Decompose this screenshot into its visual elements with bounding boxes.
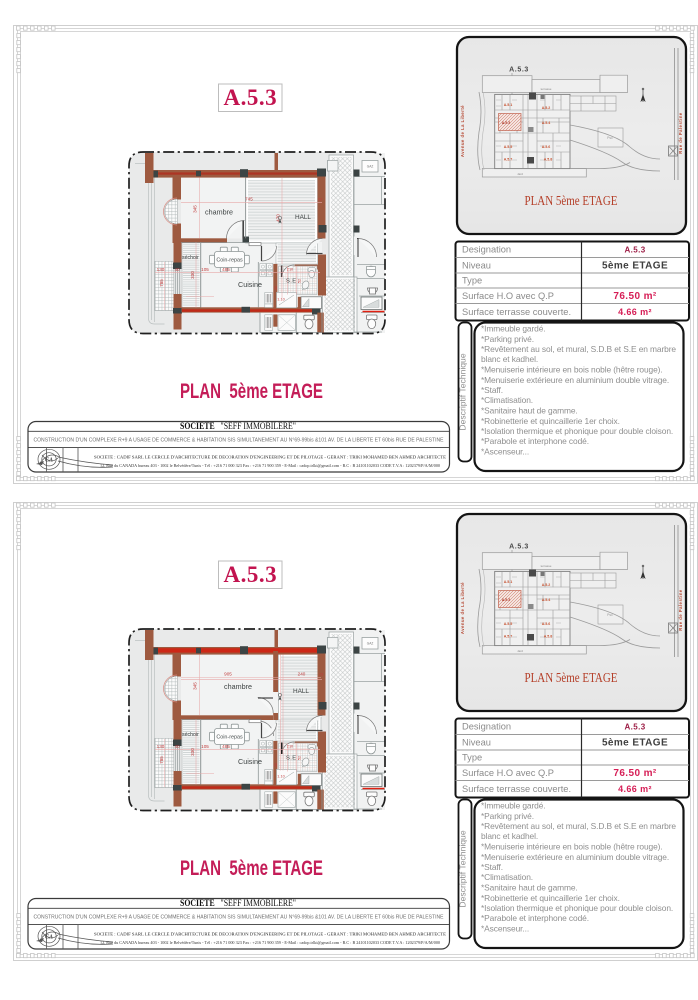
- svg-text:210: 210: [287, 745, 293, 749]
- svg-text:Descriptif Technique: Descriptif Technique: [458, 830, 468, 907]
- svg-text:chambre: chambre: [205, 208, 233, 217]
- svg-text:*Isolation thermique et phoniq: *Isolation thermique et phonique pour do…: [481, 903, 673, 913]
- svg-text:PLAN 5ème ETAGE: PLAN 5ème ETAGE: [180, 857, 323, 880]
- svg-text:séchoir: séchoir: [182, 732, 199, 738]
- svg-text:52: 52: [298, 279, 302, 283]
- svg-text:HALL: HALL: [293, 688, 309, 695]
- svg-text:*Parking privé.: *Parking privé.: [481, 811, 534, 821]
- svg-text:*Immeuble gardé.: *Immeuble gardé.: [481, 324, 546, 334]
- svg-text:*Ascenseur...: *Ascenseur...: [481, 924, 529, 934]
- svg-text:*Climatisation.: *Climatisation.: [481, 395, 533, 405]
- svg-text:*Staff.: *Staff.: [481, 385, 503, 395]
- svg-text:745: 745: [245, 196, 253, 201]
- svg-text:séchoir: séchoir: [182, 255, 199, 261]
- svg-text:*Revêtement au sol, et mural,: *Revêtement au sol, et mural, S.D.B et S…: [481, 821, 676, 831]
- svg-text:A.5.2: A.5.2: [542, 583, 551, 587]
- svg-text:A.5.1: A.5.1: [504, 103, 513, 107]
- svg-text:A.5.3: A.5.3: [624, 246, 645, 255]
- svg-text:A.5.3: A.5.3: [502, 598, 511, 602]
- svg-text:A.5.3: A.5.3: [509, 67, 529, 74]
- svg-text:345: 345: [193, 682, 198, 690]
- svg-text:SOCIETE : CADIF SARL LE CERC: SOCIETE : CADIF SARL LE CERCLE D'ARCHITE…: [94, 931, 446, 936]
- svg-text:GAZ: GAZ: [367, 642, 374, 646]
- svg-text:Niveau: Niveau: [462, 737, 491, 747]
- svg-text:GAZ: GAZ: [367, 165, 374, 169]
- svg-text:485: 485: [222, 267, 230, 272]
- svg-text:Type: Type: [462, 276, 482, 286]
- svg-text:PLAN 5ème ETAGE: PLAN 5ème ETAGE: [525, 670, 618, 685]
- svg-text:Surface H.O avec Q.P: Surface H.O avec Q.P: [462, 291, 554, 301]
- svg-text:Surface H.O avec Q.P: Surface H.O avec Q.P: [462, 768, 554, 778]
- svg-text:A.5.3: A.5.3: [223, 85, 277, 110]
- svg-text:40: 40: [174, 744, 180, 749]
- svg-text:Jard: Jard: [517, 649, 523, 653]
- svg-text:5ème ETAGE: 5ème ETAGE: [602, 737, 668, 748]
- svg-text:A.5.5: A.5.5: [504, 145, 513, 149]
- svg-text:Coin-repas: Coin-repas: [216, 258, 243, 264]
- svg-text:*Isolation thermique et phoniq: *Isolation thermique et phonique pour do…: [481, 426, 673, 436]
- svg-text:105: 105: [201, 267, 209, 272]
- svg-text:blanc et kadhel.: blanc et kadhel.: [481, 354, 538, 364]
- svg-text:S.E: S.E: [286, 279, 297, 285]
- svg-text:CONSTRUCTION D'UN COMPLEXE R+9: CONSTRUCTION D'UN COMPLEXE R+9 A USAGE D…: [34, 438, 444, 444]
- svg-text:*Revêtement au sol, et mural,: *Revêtement au sol, et mural, S.D.B et S…: [481, 344, 676, 354]
- svg-text:PLAN 5ème ETAGE: PLAN 5ème ETAGE: [180, 380, 323, 403]
- svg-text:1.10: 1.10: [277, 297, 284, 301]
- svg-text:*Immeuble gardé.: *Immeuble gardé.: [481, 801, 546, 811]
- svg-text:PLAN 5ème ETAGE: PLAN 5ème ETAGE: [525, 193, 618, 208]
- svg-text:CA: CA: [45, 935, 53, 941]
- svg-text:5ème ETAGE: 5ème ETAGE: [602, 260, 668, 271]
- svg-text:A.5.7: A.5.7: [504, 635, 513, 639]
- svg-text:*Robinetterie et quincaillerie: *Robinetterie et quincaillerie 1er choix…: [481, 416, 620, 426]
- svg-text:A.5.7: A.5.7: [504, 158, 513, 162]
- svg-text:30: 30: [274, 763, 278, 767]
- svg-text:HALL: HALL: [295, 214, 311, 221]
- svg-text:Rue de Palestine: Rue de Palestine: [678, 589, 683, 631]
- svg-text:blanc et kadhel.: blanc et kadhel.: [481, 831, 538, 841]
- svg-text:SOCIETE : CADIF SARL LE CERC: SOCIETE : CADIF SARL LE CERCLE D'ARCHITE…: [94, 454, 446, 459]
- svg-text:A.5.3: A.5.3: [509, 544, 529, 551]
- svg-text:4.66 m²: 4.66 m²: [618, 307, 652, 317]
- svg-text:Jard: Jard: [517, 172, 523, 176]
- svg-text:CA: CA: [45, 458, 53, 464]
- svg-text:A.5.8: A.5.8: [544, 635, 553, 639]
- svg-text:*Climatisation.: *Climatisation.: [481, 872, 533, 882]
- svg-text:A.5.3: A.5.3: [502, 121, 511, 125]
- svg-text:Surface terrasse couverte.: Surface terrasse couverte.: [462, 307, 571, 317]
- svg-text:*Menuiserie extérieure en alum: *Menuiserie extérieure en aluminium doub…: [481, 852, 669, 862]
- svg-text:Cuisine: Cuisine: [238, 280, 262, 289]
- svg-text:23: 23: [319, 673, 323, 677]
- svg-text:Descriptif Technique: Descriptif Technique: [458, 353, 468, 430]
- svg-text:40: 40: [174, 267, 180, 272]
- svg-text:345: 345: [193, 205, 198, 213]
- svg-text:CONSTRUCTION D'UN COMPLEXE R+9: CONSTRUCTION D'UN COMPLEXE R+9 A USAGE D…: [34, 915, 444, 921]
- svg-text:chambre: chambre: [224, 682, 252, 691]
- svg-text:*Menuiserie intérieure en bois: *Menuiserie intérieure en bois noble (hê…: [481, 365, 663, 375]
- svg-text:Avenue de La Liberté: Avenue de La Liberté: [460, 582, 465, 634]
- svg-text:76.50 m²: 76.50 m²: [613, 768, 656, 779]
- svg-text:A.5.8: A.5.8: [544, 158, 553, 162]
- svg-text:*Menuiserie intérieure en bois: *Menuiserie intérieure en bois noble (hê…: [481, 842, 663, 852]
- svg-text:S.E: S.E: [286, 756, 297, 762]
- svg-text:SOCIETE "SEFF IMMOBILERE": SOCIETE "SEFF IMMOBILERE": [180, 898, 296, 908]
- svg-text:Type: Type: [462, 753, 482, 763]
- svg-text:A.5.4: A.5.4: [542, 121, 551, 125]
- svg-text:A.5.3: A.5.3: [223, 562, 277, 587]
- svg-text:*Robinetterie et quincaillerie: *Robinetterie et quincaillerie 1er choix…: [481, 893, 620, 903]
- svg-text:330: 330: [190, 271, 195, 279]
- svg-text:terrasse: terrasse: [541, 87, 552, 91]
- svg-text:130: 130: [157, 744, 165, 749]
- svg-text:Designation: Designation: [462, 245, 511, 255]
- svg-text:210: 210: [287, 268, 293, 272]
- svg-text:A.5.6: A.5.6: [542, 622, 551, 626]
- svg-text:Niveau: Niveau: [462, 260, 491, 270]
- svg-text:240: 240: [298, 672, 306, 677]
- svg-text:*Parabole et interphone codé.: *Parabole et interphone codé.: [481, 436, 589, 446]
- svg-text:76.50 m²: 76.50 m²: [613, 291, 656, 302]
- svg-text:terrasse: terrasse: [541, 564, 552, 568]
- svg-text:485: 485: [222, 744, 230, 749]
- svg-text:Designation: Designation: [462, 722, 511, 732]
- svg-text:105: 105: [201, 744, 209, 749]
- svg-text:130: 130: [157, 267, 165, 272]
- svg-text:Cuisine: Cuisine: [238, 757, 262, 766]
- svg-text:1.10: 1.10: [277, 774, 284, 778]
- svg-text:A.5.1: A.5.1: [504, 580, 513, 584]
- svg-text:*Sanitaire haut de gamme.: *Sanitaire haut de gamme.: [481, 883, 578, 893]
- svg-text:A.5.6: A.5.6: [542, 145, 551, 149]
- svg-text:A.5.2: A.5.2: [542, 106, 551, 110]
- svg-text:Avenue de La Liberté: Avenue de La Liberté: [460, 105, 465, 157]
- svg-text:*Sanitaire haut de gamme.: *Sanitaire haut de gamme.: [481, 406, 578, 416]
- svg-text:*Ascenseur...: *Ascenseur...: [481, 447, 529, 457]
- svg-text:4.66 m²: 4.66 m²: [618, 784, 652, 794]
- svg-text:*Parking privé.: *Parking privé.: [481, 334, 534, 344]
- svg-text:23: 23: [318, 197, 322, 201]
- svg-text:*Parabole et interphone codé.: *Parabole et interphone codé.: [481, 913, 589, 923]
- svg-text:A.5.3: A.5.3: [624, 723, 645, 732]
- svg-text:785: 785: [159, 279, 164, 287]
- svg-text:905: 905: [224, 672, 232, 677]
- svg-text:30: 30: [274, 286, 278, 290]
- svg-text:Coin-repas: Coin-repas: [216, 735, 243, 741]
- svg-text:*Menuiserie extérieure en alum: *Menuiserie extérieure en aluminium doub…: [481, 375, 669, 385]
- svg-text:*Staff.: *Staff.: [481, 862, 503, 872]
- svg-text:330: 330: [190, 748, 195, 756]
- svg-text:SOCIETE "SEFF IMMOBILERE": SOCIETE "SEFF IMMOBILERE": [180, 421, 296, 431]
- svg-text:A.5.4: A.5.4: [542, 598, 551, 602]
- svg-text:785: 785: [159, 756, 164, 764]
- svg-text:Rue de Palestine: Rue de Palestine: [678, 112, 683, 154]
- svg-text:52: 52: [298, 756, 302, 760]
- svg-text:A.5.5: A.5.5: [504, 622, 513, 626]
- svg-text:Surface terrasse couverte.: Surface terrasse couverte.: [462, 784, 571, 794]
